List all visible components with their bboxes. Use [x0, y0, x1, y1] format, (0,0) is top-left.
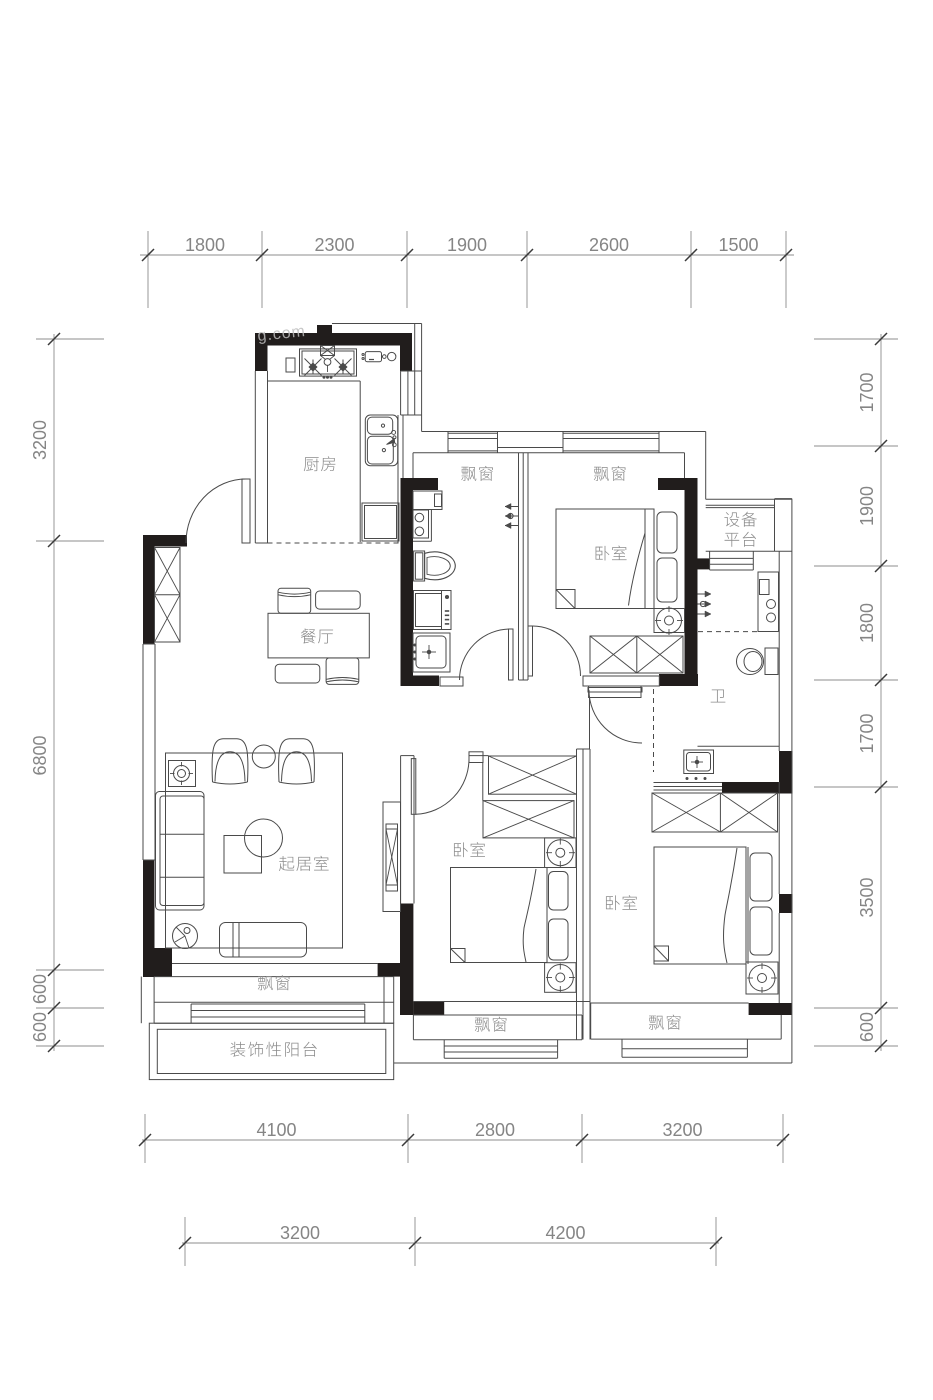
svg-text:1500: 1500	[718, 235, 758, 255]
svg-text:1700: 1700	[857, 372, 877, 412]
svg-text:2600: 2600	[589, 235, 629, 255]
svg-text:3200: 3200	[30, 420, 50, 460]
svg-text:3200: 3200	[280, 1223, 320, 1243]
svg-text:600: 600	[30, 1012, 50, 1042]
svg-text:2300: 2300	[314, 235, 354, 255]
svg-text:1800: 1800	[185, 235, 225, 255]
svg-text:1800: 1800	[857, 603, 877, 643]
svg-text:4200: 4200	[545, 1223, 585, 1243]
svg-text:1900: 1900	[447, 235, 487, 255]
svg-text:3200: 3200	[662, 1120, 702, 1140]
svg-text:1900: 1900	[857, 486, 877, 526]
svg-text:3500: 3500	[857, 877, 877, 917]
svg-text:2800: 2800	[475, 1120, 515, 1140]
svg-text:600: 600	[30, 974, 50, 1004]
svg-text:4100: 4100	[256, 1120, 296, 1140]
svg-text:600: 600	[857, 1012, 877, 1042]
svg-text:1700: 1700	[857, 713, 877, 753]
svg-text:6800: 6800	[30, 735, 50, 775]
